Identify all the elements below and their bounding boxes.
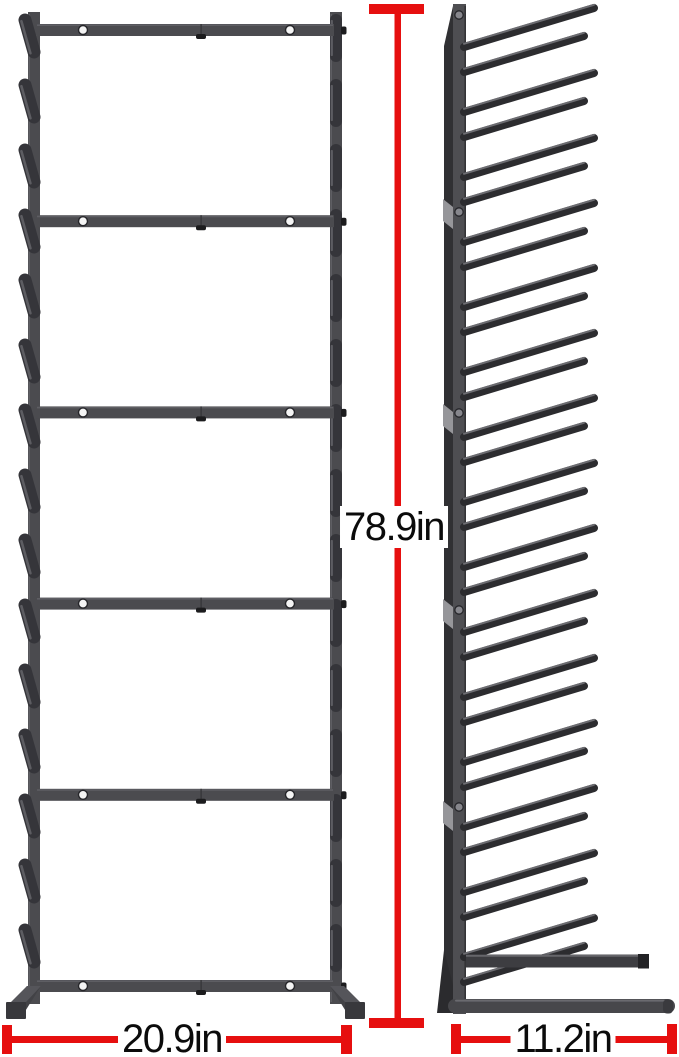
- center-joint-tab: [196, 225, 206, 230]
- depth-dim-right-cap: [667, 1024, 677, 1054]
- side-view: [437, 4, 673, 1014]
- width-dimension-label: 20.9in: [118, 1018, 226, 1057]
- side-post: [453, 4, 466, 1014]
- screw-hole: [286, 408, 295, 417]
- center-joint-tab: [196, 799, 206, 804]
- screw-hole: [286, 599, 295, 608]
- screw-hole: [286, 790, 295, 799]
- foot-end-cap: [638, 954, 649, 969]
- width-dim-right-cap: [341, 1025, 352, 1054]
- screw-hole: [455, 11, 463, 19]
- foot-end-corner: [663, 1000, 673, 1014]
- height-dim-bottom-cap: [369, 1018, 424, 1028]
- side-bolt: [341, 600, 347, 608]
- foot-end-face: [345, 1002, 365, 1019]
- screw-hole: [286, 217, 295, 226]
- side-bolt: [341, 409, 347, 417]
- height-dimension-label: 78.9in: [340, 506, 448, 548]
- screw-hole: [79, 599, 88, 608]
- center-joint-tab: [196, 990, 206, 995]
- screw-hole: [79, 217, 88, 226]
- side-bolt: [341, 218, 347, 226]
- side-bolt: [341, 791, 347, 799]
- foot-end-face: [6, 1002, 26, 1019]
- screw-hole: [79, 408, 88, 417]
- screw-hole: [455, 606, 463, 614]
- side-bolt: [341, 27, 347, 35]
- screw-hole: [455, 409, 463, 417]
- depth-dimension-label: 11.2in: [510, 1018, 615, 1057]
- center-joint-tab: [196, 34, 206, 39]
- front-view: [6, 12, 365, 1019]
- screw-hole: [286, 26, 295, 35]
- center-joint-tab: [196, 416, 206, 421]
- screw-hole: [286, 982, 295, 991]
- screw-hole: [79, 26, 88, 35]
- screw-hole: [455, 803, 463, 811]
- product-dimension-image: 78.9in 20.9in 11.2in: [0, 0, 679, 1057]
- center-joint-tab: [196, 608, 206, 613]
- screw-hole: [79, 982, 88, 991]
- screw-hole: [455, 208, 463, 216]
- screw-hole: [79, 790, 88, 799]
